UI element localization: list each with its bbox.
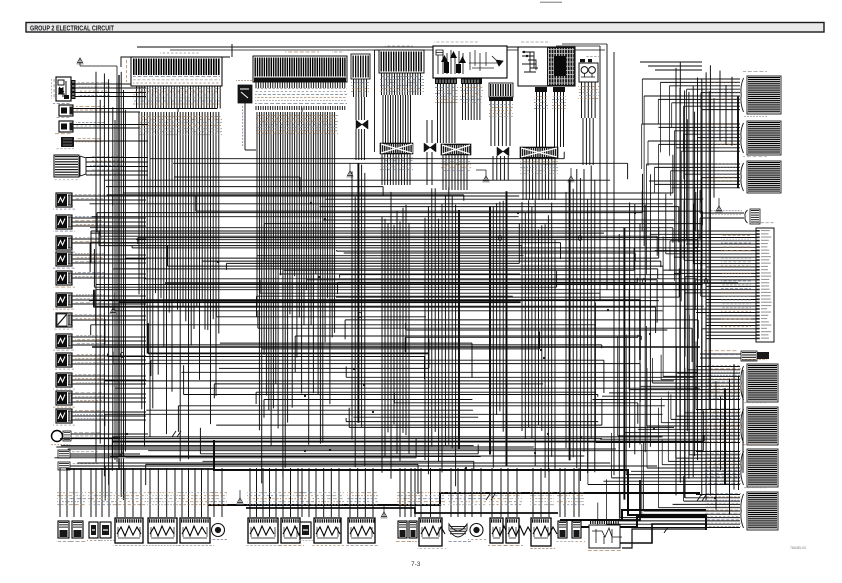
svg-text:GROUP 2 ELECTRICAL CIRCUIT: GROUP 2 ELECTRICAL CIRCUIT bbox=[30, 25, 115, 32]
svg-text:7-3: 7-3 bbox=[411, 561, 421, 568]
svg-text:76A3EL03: 76A3EL03 bbox=[790, 546, 806, 550]
